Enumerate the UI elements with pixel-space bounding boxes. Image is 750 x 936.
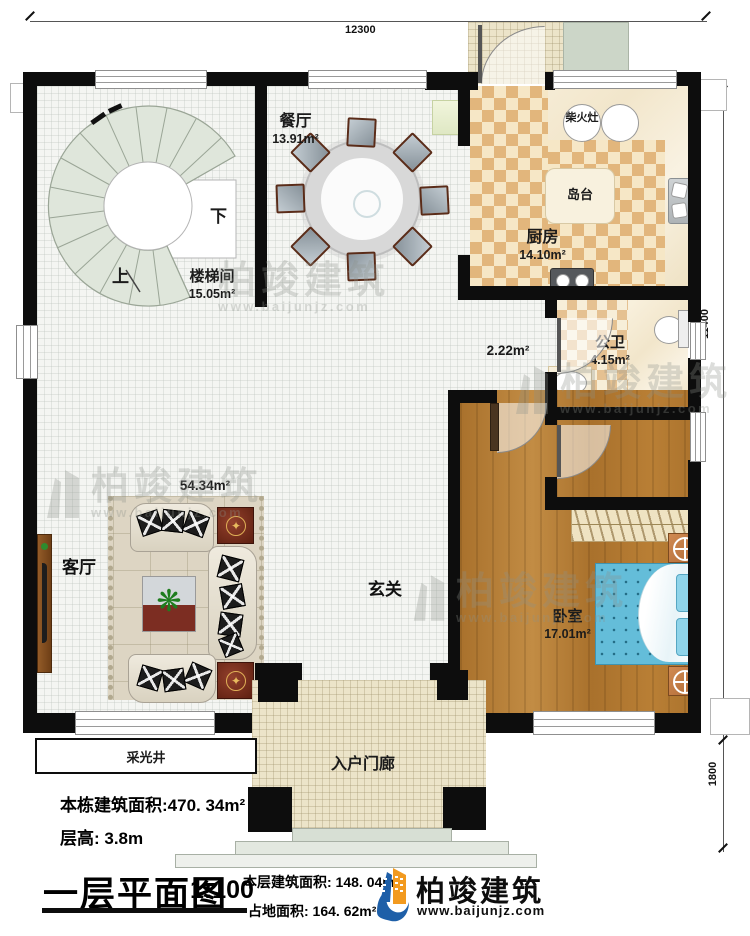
living-room-label: 客厅 [62,553,96,578]
top-dimension-label: 12300 [343,24,378,36]
kitchen-island: 岛台 [545,168,615,224]
porch-column [248,787,292,832]
window [308,70,427,89]
kitchen-door-leaf [478,25,482,83]
tv-cabinet [37,534,52,673]
bedroom-label: 卧室 17.01m² [525,608,610,642]
bedroom-door-leaf [490,403,499,451]
window [16,325,38,379]
light-well: 采光井 [35,738,257,774]
dining-chair [419,185,449,215]
title-underline [42,908,247,913]
total-building-area: 本栋建筑面积:470. 34m² [60,791,245,816]
dining-chair [347,252,377,282]
dining-chair [276,184,306,214]
sofa-top [130,503,214,552]
living-area-label: 54.34m² [170,478,240,495]
window [75,711,215,735]
window [690,412,706,462]
stairs-up-label: 上 [112,266,129,287]
porch-column [443,787,486,830]
floor-plan-canvas: 12300 11400 1800 岛台 柴火灶 厨房 14.10m² 公卫 [0,0,750,936]
kitchen-label: 厨房 14.10m² [500,228,585,264]
sofa-bottom [128,654,216,703]
window [533,711,655,735]
wood-stove-label: 柴火灶 [551,112,613,126]
sofa-right [208,546,257,660]
dining-chair [346,117,376,147]
stairwell-label: 楼梯间 15.05m² [172,268,252,302]
porch-column [258,672,298,702]
plant-icon: ❋ [152,585,186,619]
dimension-tick [701,11,711,21]
porch-step [175,854,537,868]
dimension-tick [25,11,35,21]
brand-site: www.baijunjz.com [417,903,545,918]
foyer-label: 玄关 [368,575,402,600]
right-lower-dimension-label: 1800 [707,760,719,788]
window [95,70,207,89]
window [690,322,706,360]
window [553,70,677,89]
side-table: ✦ [217,662,254,699]
corridor-area-label: 2.22m² [468,343,548,360]
porch-column [437,670,468,700]
plant-icon [41,543,48,550]
stairs-down-label: 下 [210,206,227,227]
inner-bath-door-leaf [557,425,561,477]
floor-height: 层高: 3.8m [60,824,143,849]
brand-logo-icon [374,866,412,924]
coffee-table: ❋ [142,576,196,632]
dining-label: 餐厅 13.91m² [258,112,333,148]
side-table: ✦ [217,507,254,544]
corner-footing [710,698,750,735]
island-label: 岛台 [546,187,614,203]
tv [42,563,47,643]
public-bath-door-leaf [557,318,561,372]
land-area: 占地面积: 164. 62m² [248,901,376,921]
entry-porch-label: 入户门廊 [318,755,408,775]
